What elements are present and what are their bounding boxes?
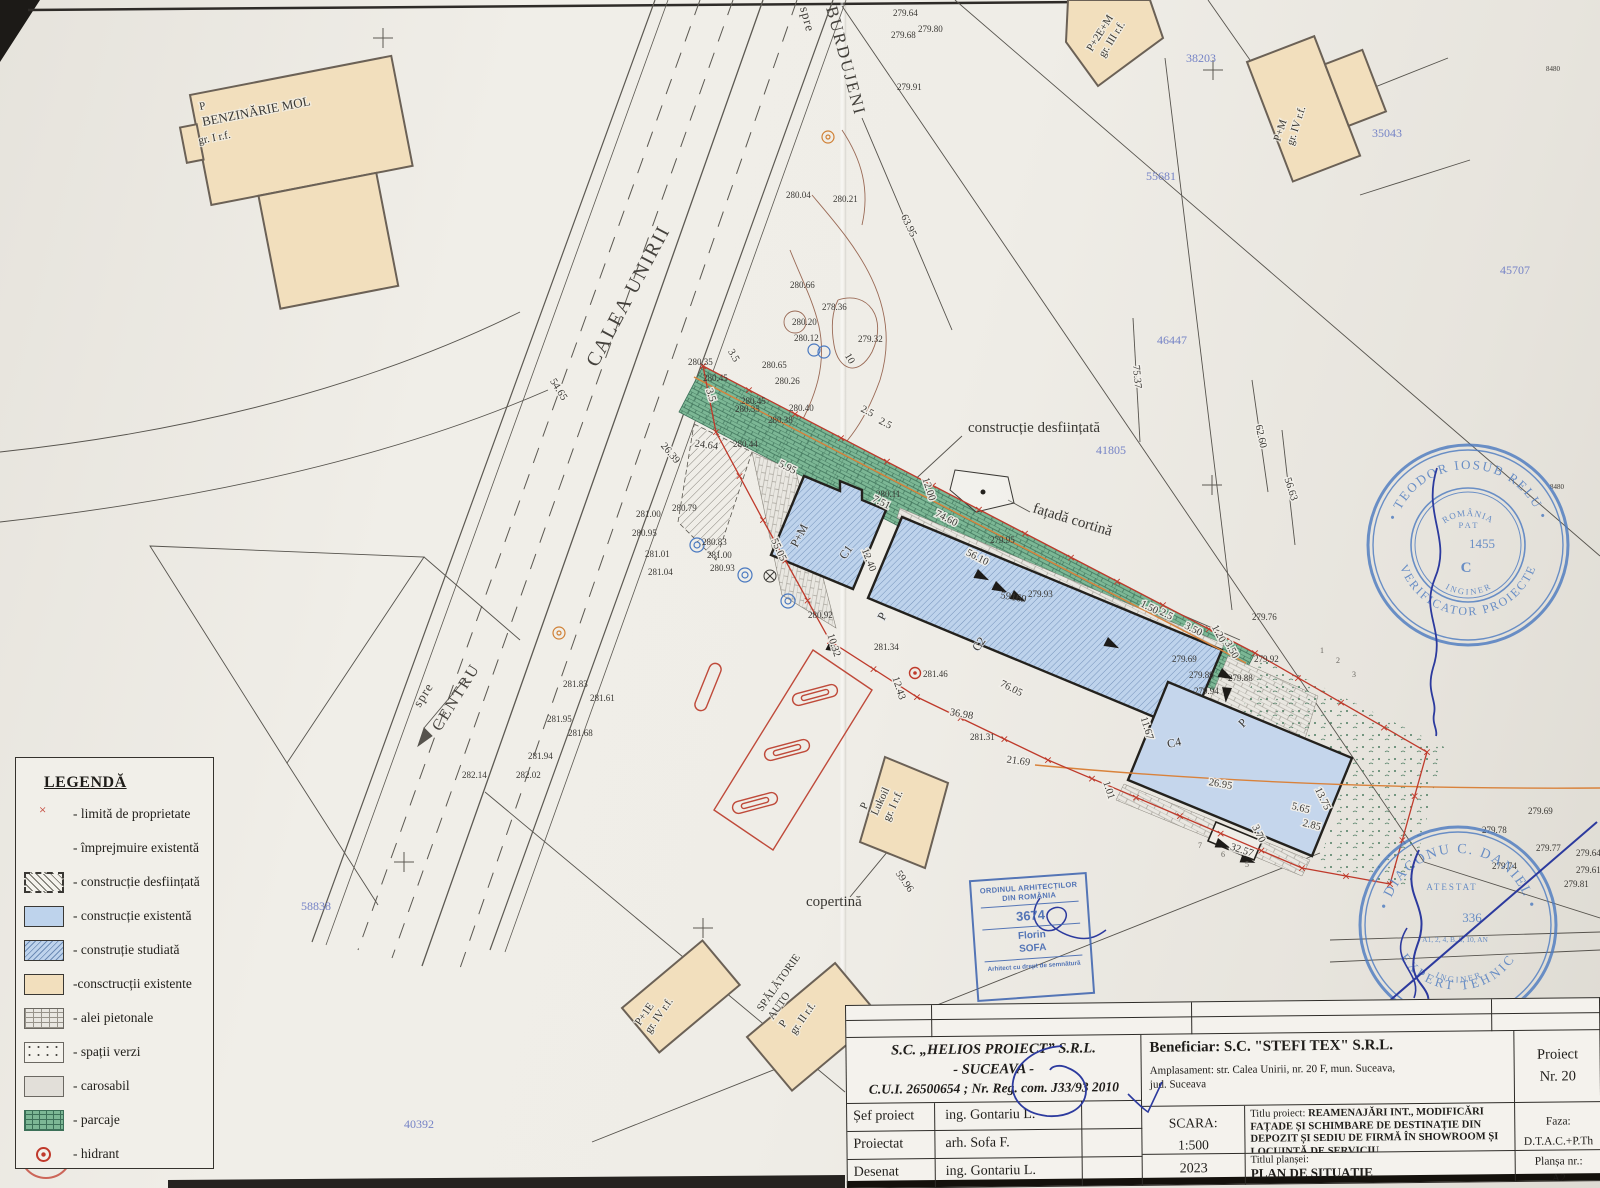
legend-item-hydrant: - hidrant: [24, 1142, 207, 1166]
boundary-cross-mark: ×: [1293, 671, 1302, 684]
boundary-cross-mark: ×: [711, 426, 720, 439]
phase-value: D.T.A.C.+P.Th: [1515, 1132, 1600, 1151]
sheet-title-value: PLAN DE SITUAȚIE: [1246, 1163, 1515, 1182]
parcel-number-label: 58838: [301, 899, 331, 913]
dimension-label: 59.96: [893, 869, 916, 895]
elevation-label: 279.91: [897, 82, 922, 92]
dimension-label: 56.63: [1281, 476, 1299, 502]
parcel-number-label: 55681: [1146, 169, 1176, 183]
boundary-cross-mark: ×: [1216, 827, 1225, 840]
elevation-label: 278.36: [822, 302, 847, 312]
role-sef-proiect: Șef proiect: [847, 1103, 935, 1132]
project-number-cell: Proiect Nr. 20: [1514, 1030, 1600, 1103]
parking-lot-number: 7: [1198, 841, 1202, 850]
dimension-label: 10: [842, 351, 857, 366]
elevation-label: 281.04: [648, 567, 673, 577]
parcel-number-label: 45707: [1500, 263, 1530, 277]
elevation-label: 279.81: [1564, 879, 1589, 889]
parking-lot-number: 1: [1320, 646, 1324, 655]
dimension-label: 63.95: [898, 213, 918, 239]
dimension-label: 62.60: [1253, 424, 1269, 449]
signature-cell: [1083, 1157, 1143, 1187]
parking-lot-number: 5: [1245, 860, 1249, 869]
boundary-cross-mark: ×: [882, 455, 891, 468]
dimension-label: 3.5: [725, 347, 741, 364]
expert-stamp-categories: A1, 2, 4, B, 8, 10, AN: [1422, 935, 1488, 944]
building-p1e: [622, 941, 740, 1053]
elevation-label: 280.79: [672, 503, 697, 513]
hydrant-symbol: [910, 668, 921, 679]
elevation-label: 281.68: [568, 728, 593, 738]
dimension-label: 1.01: [1100, 780, 1116, 801]
edge-mark-label: 8480: [1546, 65, 1561, 73]
roadway-swatch-icon: [24, 1076, 64, 1097]
boundary-cross-mark: ×: [1410, 790, 1419, 803]
elevation-label: 281.61: [590, 693, 615, 703]
elevation-label: 280.44: [733, 439, 758, 449]
boundary-cross-mark: ×: [803, 594, 812, 607]
boundary-cross-mark: ×: [1341, 870, 1350, 883]
legend-label: - alei pietonale: [73, 1010, 153, 1026]
legend-item-parking: - parcaje: [24, 1108, 207, 1132]
elevation-label: 280.21: [833, 194, 858, 204]
dimension-label: 36.98: [949, 707, 974, 722]
parking-lot-number: 6: [1221, 850, 1225, 859]
elevation-label: 280.35: [688, 357, 713, 367]
small-p-label-1: P: [874, 610, 890, 623]
annotation-canopy: copertină: [806, 894, 862, 910]
elevation-label: 280.83: [702, 537, 727, 547]
signature-cell: [1082, 1129, 1142, 1158]
boundary-cross-mark: ×: [1087, 772, 1096, 785]
dimension-label: 76.05: [998, 679, 1024, 700]
dimension-label: 12.43: [889, 675, 907, 701]
scale-cell: SCARA: 1:500: [1142, 1106, 1245, 1155]
title-block: S.C. „HELIOS PROIECT” S.R.L. - SUCEAVA -…: [845, 997, 1600, 1188]
expert-stamp-atestat: ATESTAT: [1426, 882, 1477, 892]
parcel-number-label: 40392: [404, 1117, 434, 1131]
legend-label: - parcaje: [73, 1112, 120, 1128]
elevation-label: 280.38: [768, 415, 793, 425]
existing-buildings-swatch-icon: [24, 974, 64, 995]
boundary-cross-mark: ×: [869, 663, 878, 676]
elevation-label: 279.64: [893, 8, 918, 18]
year-cell: 2023: [1143, 1154, 1246, 1186]
architect-order-stamp: ORDINUL ARHITECȚILOR DIN ROMÂNIA 3674 Fl…: [969, 872, 1095, 1002]
dimension-label: 2.5: [859, 404, 876, 420]
elevation-label: 281.00: [707, 550, 732, 560]
elevation-label: 279.80: [918, 24, 943, 34]
project-title-cell: Titlu proiect: REAMENAJĂRI INT., MODIFIC…: [1245, 1103, 1515, 1154]
elevation-label: 280.04: [786, 190, 811, 200]
legend-label: - construcție desființată: [73, 874, 200, 890]
sheet-number-label: Planșa nr.:: [1516, 1153, 1600, 1171]
hydrant-icon: [24, 1144, 64, 1165]
elevation-label: 282.02: [516, 770, 541, 780]
elevation-label: 279.32: [858, 334, 883, 344]
elevation-label: 280.20: [792, 317, 817, 327]
legend-item-existing-fence: - împrejmuire existentă: [24, 836, 207, 860]
elevation-label: 279.61: [1576, 865, 1600, 875]
elevation-label: 279.76: [1252, 612, 1277, 622]
phase-label: Faza:: [1515, 1112, 1600, 1132]
parcel-number-label: 35043: [1372, 126, 1402, 140]
street-label-spre-centru: spre: [410, 680, 436, 710]
verifier-stamp-letter: C: [1461, 560, 1472, 576]
legend-label: - împrejmuire existentă: [73, 840, 199, 856]
parcel-number-label: 41805: [1096, 443, 1126, 457]
boundary-cross-mark: ×: [744, 383, 753, 396]
legend-item-existing-constructions-tan: -consctrucții existente: [24, 972, 207, 996]
verifier-stamp-number: 1455: [1469, 536, 1495, 551]
design-company-cell: S.C. „HELIOS PROIECT” S.R.L. - SUCEAVA -…: [846, 1035, 1142, 1104]
elevation-label: 280.40: [789, 403, 814, 413]
elevation-label: 280.12: [794, 333, 819, 343]
legend-label: -consctrucții existente: [73, 976, 192, 992]
role-desenat: Desenat: [848, 1159, 936, 1188]
site-address-line1: Amplasament: str. Calea Unirii, nr. 20 F…: [1150, 1062, 1395, 1077]
building-pm-gr4: [1247, 22, 1397, 182]
elevation-label: 279.68: [891, 30, 916, 40]
legend-item-green-spaces: - spații verzi: [24, 1040, 207, 1064]
elevation-label: 279.94: [1194, 686, 1219, 696]
dimension-label: 75.37: [1130, 365, 1143, 389]
demolished-swatch-icon: [24, 872, 64, 893]
elevation-label: 280.92: [808, 610, 833, 620]
boundary-cross-mark: ×: [1175, 810, 1184, 823]
parking-swatch-icon: [24, 1110, 64, 1131]
legend-item-roadway: - carosabil: [24, 1074, 207, 1098]
edge-marks: 84808480: [1546, 65, 1565, 491]
parking-lot-number: 3: [1352, 670, 1356, 679]
name-sef-proiect: ing. Gontariu L.: [935, 1102, 1082, 1132]
sheet-number-value: A2: [1516, 1170, 1600, 1182]
legend-title: LEGENDĂ: [44, 774, 213, 792]
legend-label: - spații verzi: [73, 1044, 140, 1060]
verifier-round-stamp: • TEODOR IOSUB RELU • VERIFICATOR PROIEC…: [1368, 445, 1568, 645]
boundary-cross-mark: ×: [1422, 746, 1431, 759]
elevation-label: 281.31: [970, 732, 995, 742]
elevation-label: 281.00: [636, 509, 661, 519]
elevation-label: 281.83: [563, 679, 588, 689]
legend-item-demolished-construction: - construcție desființată: [24, 870, 207, 894]
name-proiectat: arh. Sofa F.: [935, 1130, 1082, 1160]
elevation-label: 281.94: [528, 751, 553, 761]
elevation-label: 279.95: [990, 535, 1015, 545]
parcel-number-label: 46447: [1157, 333, 1187, 347]
boundary-cross-mark: ×: [1000, 733, 1009, 746]
legend-item-property-limit: - limită de proprietate: [24, 802, 207, 826]
parking-lot-number: 2: [1336, 656, 1340, 665]
svg-text:I N G I N E R: I N G I N E R: [1444, 581, 1492, 596]
verifier-stamp-pat: P A T: [1459, 520, 1479, 530]
legend-item-studied-construction: - construție studiată: [24, 938, 207, 962]
elevation-label: 280.35: [735, 404, 760, 414]
elevation-label: 281.46: [923, 669, 948, 679]
elevation-label: 279.92: [1254, 654, 1279, 664]
elevation-label: 279.88: [1228, 673, 1253, 683]
expert-round-stamp: • DIACONU C. DANIEL • EXPERT TEHNIC ATES…: [1360, 827, 1556, 1023]
elevation-label: 281.95: [547, 714, 572, 724]
elevation-label: 280.93: [710, 563, 735, 573]
elevation-label: 279.64: [1576, 848, 1600, 858]
elevation-label: 279.69: [1172, 654, 1197, 664]
legend-label: - construție studiată: [73, 942, 179, 958]
studied-construction-swatch-icon: [24, 940, 64, 961]
building-c4-label: C4: [1166, 734, 1183, 751]
legend-item-existing-construction: - construcție existentă: [24, 904, 207, 928]
elevation-label: 281.34: [874, 642, 899, 652]
boundary-cross-mark: ×: [1131, 791, 1140, 804]
elevation-label: 280.26: [775, 376, 800, 386]
boundary-cross-mark: ×: [1379, 721, 1388, 734]
boundary-cross-mark: ×: [1297, 862, 1306, 875]
legend-item-pedestrian-alleys: - alei pietonale: [24, 1006, 207, 1030]
elevation-label: 279.77: [1536, 843, 1561, 853]
parcel-number-label: 38203: [1186, 51, 1216, 65]
project-label: Proiect: [1514, 1044, 1600, 1067]
scale-label: SCARA:: [1142, 1112, 1244, 1135]
sheet-title-cell: Titlul planșei: PLAN DE SITUAȚIE: [1246, 1151, 1516, 1185]
signature-cell: [1082, 1101, 1142, 1130]
company-cui: C.U.I. 26500654 ; Nr. Reg. com. J33/93 2…: [847, 1078, 1141, 1099]
legend-panel: LEGENDĂ - limită de proprietate - împrej…: [15, 757, 214, 1169]
elevation-label: 280.95: [632, 528, 657, 538]
dimension-label: 21.69: [1006, 754, 1031, 768]
phase-cell: Faza: D.T.A.C.+P.Th: [1515, 1102, 1600, 1151]
elevation-label: 281.01: [645, 549, 670, 559]
elevation-label: 279.69: [1528, 806, 1553, 816]
dimension-label: 2.5: [877, 416, 894, 432]
existing-construction-swatch-icon: [24, 906, 64, 927]
boundary-cross-mark: ×: [1020, 527, 1029, 540]
scanned-site-plan-sheet: ×××××××××××××××××××××××××××××××××××××××: [0, 0, 1600, 1188]
elevation-label: 280.45: [703, 373, 728, 383]
annotation-demolished: construcție desființată: [968, 420, 1100, 436]
elevation-label: 282.14: [462, 770, 487, 780]
legend-label: - hidrant: [73, 1146, 119, 1162]
elevation-label: 280.65: [762, 360, 787, 370]
elevation-label: 279.93: [1028, 589, 1053, 599]
boundary-cross-mark: ×: [1257, 844, 1266, 857]
boundary-cross-mark: ×: [912, 691, 921, 704]
beneficiary-cell: Beneficiar: S.C. "STEFI TEX" S.R.L. Ampl…: [1141, 1031, 1515, 1107]
boundary-cross-mark: ×: [1336, 696, 1345, 709]
name-desenat: ing. Gontariu L.: [936, 1158, 1083, 1188]
green-spaces-swatch-icon: [24, 1042, 64, 1063]
project-title-label: Titlu proiect:: [1250, 1108, 1305, 1120]
boundary-cross-mark: ×: [974, 503, 983, 516]
role-proiectat: Proiectat: [847, 1131, 935, 1160]
street-label-spre-burdujeni: spre: [797, 5, 818, 34]
beneficiary-name: Beneficiar: S.C. "STEFI TEX" S.R.L.: [1149, 1036, 1505, 1057]
boundary-cross-mark: ×: [836, 431, 845, 444]
boundary-cross-mark: ×: [1043, 754, 1052, 767]
legend-label: - limită de proprietate: [73, 806, 190, 822]
elevation-label: 280.66: [790, 280, 815, 290]
boundary-cross-mark: ×: [735, 470, 744, 483]
site-address-line2: jud. Suceava: [1150, 1079, 1206, 1092]
elevation-label: 279.89: [1189, 670, 1214, 680]
scale-value: 1:500: [1142, 1133, 1244, 1154]
dimension-label: 26.39: [658, 441, 682, 466]
dimension-label: 54.65: [547, 377, 569, 403]
legend-label: - carosabil: [73, 1078, 130, 1094]
pedestrian-alleys-swatch-icon: [24, 1008, 64, 1029]
project-number: Nr. 20: [1515, 1066, 1600, 1089]
manhole-symbol: [764, 570, 776, 582]
sheet-number-cell: Planșa nr.: A2: [1516, 1150, 1600, 1182]
verifier-stamp-inginer: I N G I N E R: [1444, 581, 1492, 596]
boundary-cross-mark: ×: [1066, 551, 1075, 564]
legend-label: - construcție existentă: [73, 908, 191, 924]
boundary-cross-mark: ×: [758, 514, 767, 527]
boundary-cross-mark: ×: [1112, 575, 1121, 588]
annotation-curtain-facade: fațadă cortină: [1031, 501, 1114, 540]
street-label-calea-unirii: CALEA UNIRII: [582, 222, 675, 371]
